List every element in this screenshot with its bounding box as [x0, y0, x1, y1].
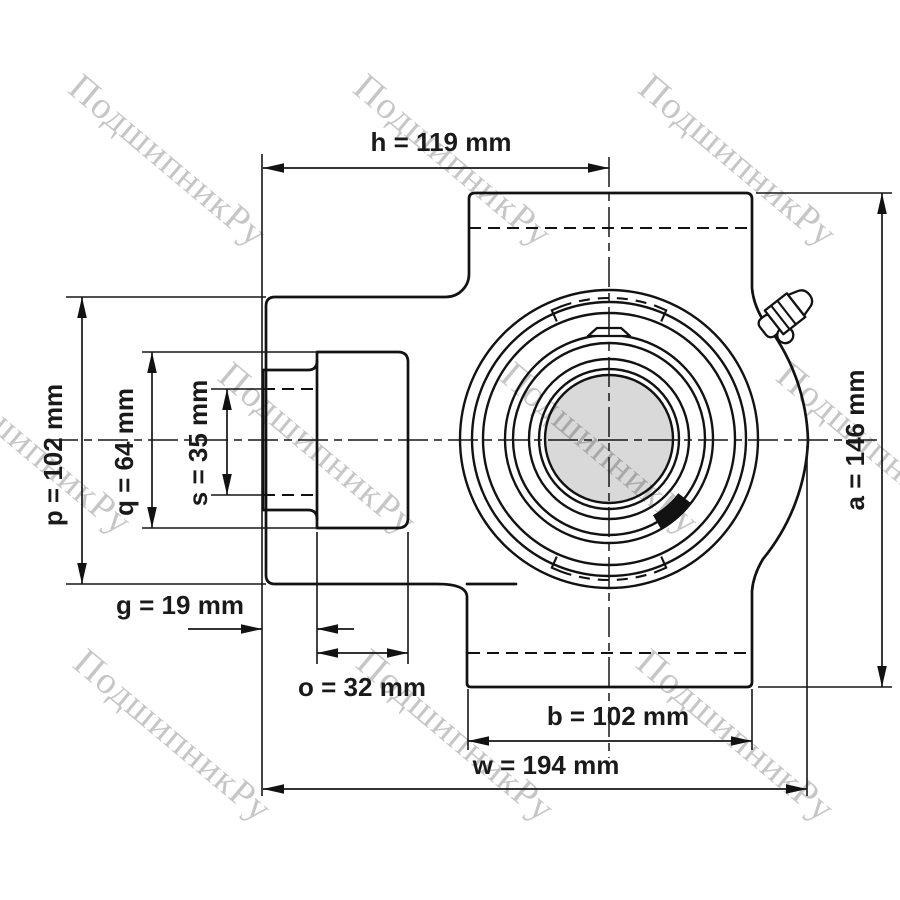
drawing-page: ПодшипникРу ПодшипникРу ПодшипникРу Подш…	[0, 0, 900, 900]
watermark-text: ПодшипникРу	[628, 641, 843, 831]
dimension-label-g: g = 19 mm	[116, 590, 244, 620]
dimension-g: g = 19 mm	[116, 590, 354, 634]
watermark-text: ПодшипникРу	[65, 641, 280, 831]
watermark-text: ПодшипникРу	[60, 66, 275, 256]
arrowhead	[263, 163, 284, 173]
arrowhead	[387, 648, 408, 658]
dimension-label-o: o = 32 mm	[298, 672, 426, 702]
arrowhead	[877, 193, 887, 214]
dimension-label-q: q = 64 mm	[109, 388, 139, 516]
arrowhead	[317, 624, 338, 634]
dimensions: h = 119 mm p = 102 mm q = 64 mm s = 35 m…	[38, 127, 892, 796]
dimension-label-b: b = 102 mm	[547, 701, 689, 731]
dimension-label-s: s = 35 mm	[183, 380, 213, 506]
arrowhead	[77, 563, 87, 584]
dimension-label-w: w = 194 mm	[472, 750, 620, 780]
groove-arc-top-right-bracket	[657, 306, 666, 321]
grease-fitting	[754, 283, 825, 351]
groove-arc-bottom-right-bracket	[657, 557, 666, 572]
watermark-text: ПодшипникРу	[768, 354, 900, 544]
arrowhead	[877, 666, 887, 687]
arrowhead	[147, 507, 157, 528]
arrowhead	[147, 352, 157, 373]
dimension-label-a: a = 146 mm	[840, 370, 870, 511]
dimension-label-p: p = 102 mm	[38, 384, 68, 526]
technical-drawing: ПодшипникРу ПодшипникРу ПодшипникРу Подш…	[0, 0, 900, 900]
arrowhead	[317, 648, 338, 658]
groove-arc-top-left-bracket	[552, 306, 561, 321]
arrowhead	[222, 474, 232, 495]
watermark-text: ПодшипникРу	[348, 641, 563, 831]
groove-arc-bottom-left-bracket	[552, 557, 561, 572]
arrowhead	[241, 624, 262, 634]
arrowhead	[588, 163, 609, 173]
dimension-p: p = 102 mm	[38, 297, 87, 584]
arrowhead	[77, 297, 87, 318]
dimension-label-h: h = 119 mm	[371, 127, 512, 157]
dimension-s: s = 35 mm	[183, 380, 232, 506]
